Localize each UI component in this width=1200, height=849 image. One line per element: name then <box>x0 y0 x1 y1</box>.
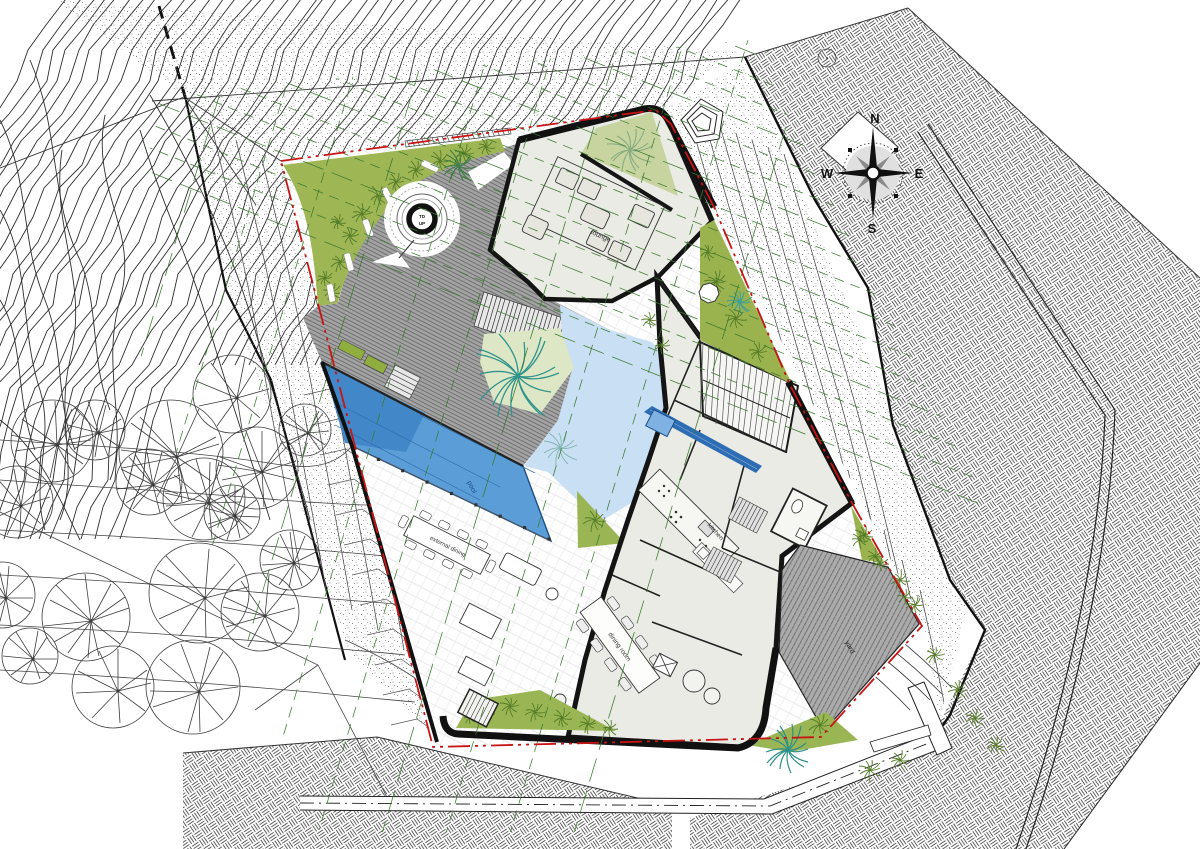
svg-text:E: E <box>915 166 924 181</box>
svg-text:W: W <box>821 166 834 181</box>
svg-text:S: S <box>868 221 877 236</box>
svg-text:UP: UP <box>419 221 425 226</box>
svg-text:N: N <box>870 111 879 126</box>
svg-text:TD: TD <box>419 214 426 219</box>
